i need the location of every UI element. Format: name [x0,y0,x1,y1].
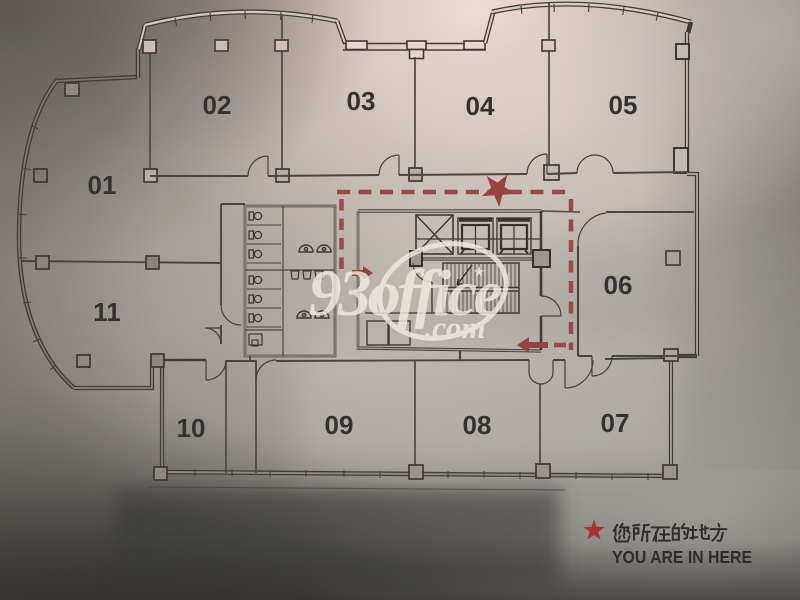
svg-text:06: 06 [604,270,633,300]
svg-text:.com: .com [424,310,485,345]
svg-text:09: 09 [325,410,354,440]
svg-text:07: 07 [601,408,630,438]
svg-text:03: 03 [347,86,376,116]
svg-text:11: 11 [93,297,121,327]
svg-text:02: 02 [203,90,232,120]
svg-text:10: 10 [177,413,206,443]
svg-text:05: 05 [609,90,638,120]
svg-text:YOU ARE IN HERE: YOU ARE IN HERE [612,547,752,567]
svg-text:08: 08 [463,410,492,440]
svg-text:04: 04 [466,91,495,121]
svg-text:01: 01 [88,170,117,200]
